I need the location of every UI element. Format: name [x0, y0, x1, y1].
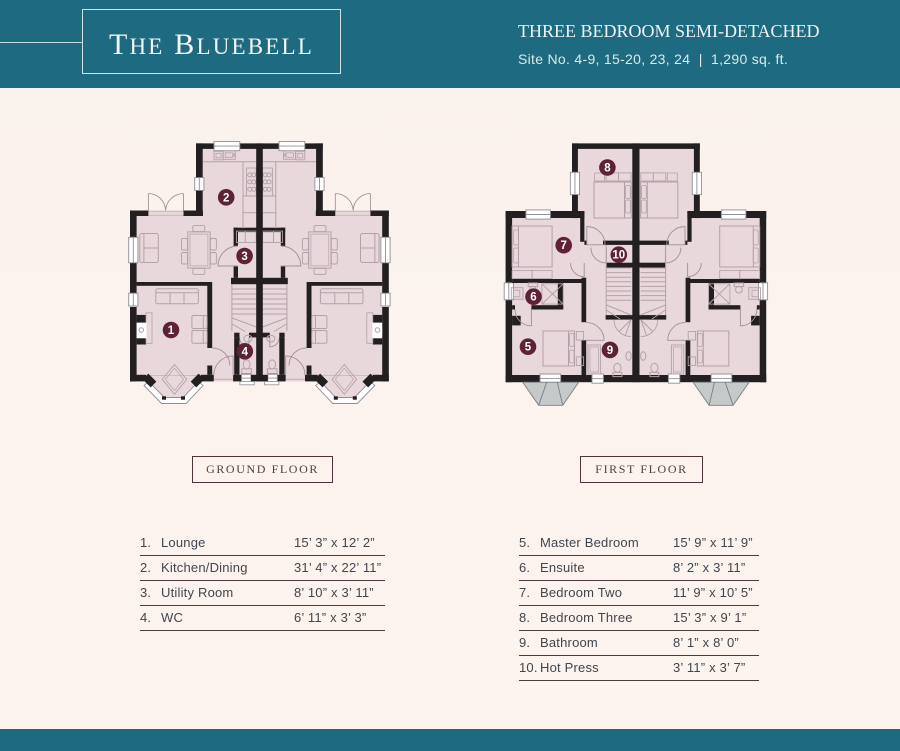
svg-text:4: 4 [242, 346, 249, 358]
svg-text:8: 8 [604, 163, 611, 175]
svg-text:6: 6 [530, 292, 536, 304]
svg-text:2: 2 [223, 192, 229, 204]
svg-text:9: 9 [607, 345, 613, 357]
svg-text:1: 1 [168, 325, 175, 337]
svg-text:7: 7 [560, 240, 566, 252]
svg-text:5: 5 [525, 342, 532, 354]
svg-text:3: 3 [241, 251, 247, 263]
svg-text:10: 10 [612, 250, 625, 262]
